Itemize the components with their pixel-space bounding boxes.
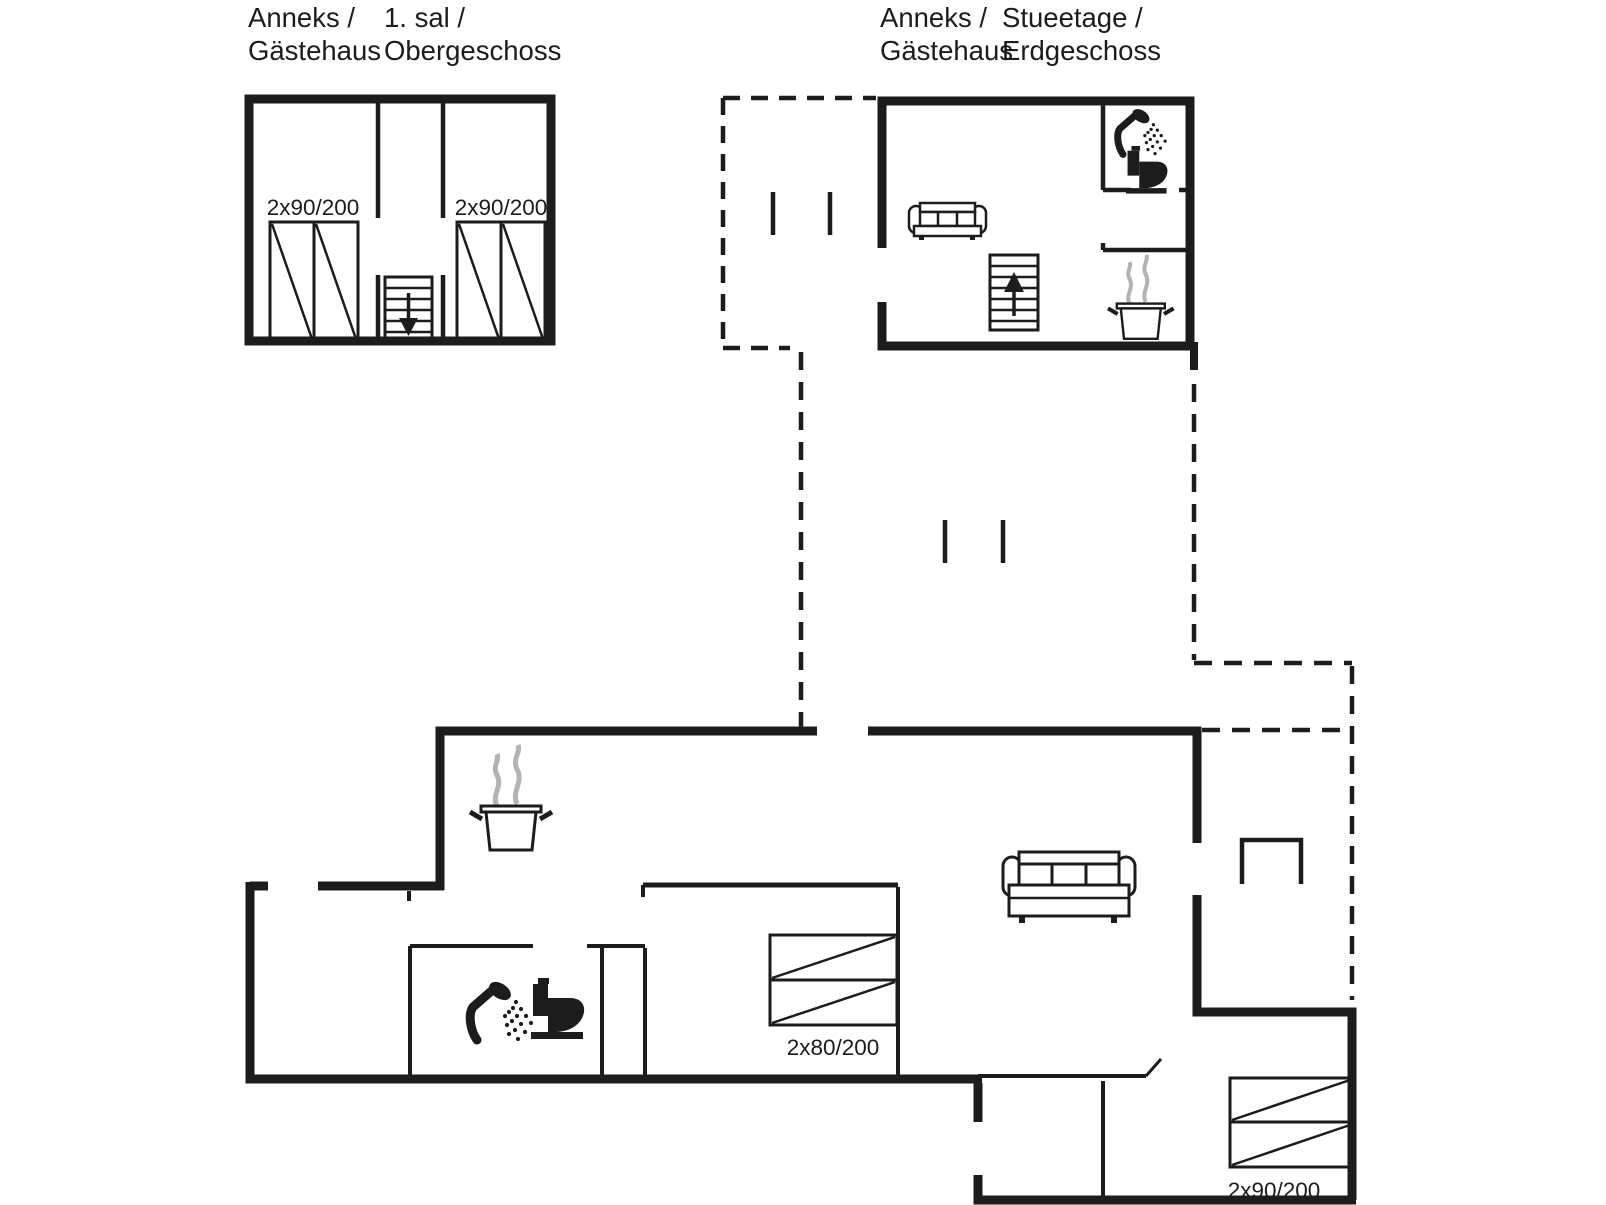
- double-bed-icon: [270, 222, 358, 341]
- toilet-icon: [531, 978, 584, 1039]
- title-text: Erdgeschoss: [1002, 35, 1161, 66]
- bed-size-label: 2x80/200: [787, 1035, 880, 1060]
- window-tick-marks: [945, 520, 1003, 563]
- annex-upper-title: Anneks / Gästehaus 1. sal / Obergeschoss: [248, 2, 561, 66]
- title-text: Stueetage /: [1002, 2, 1143, 33]
- double-bed-icon: [770, 935, 897, 1025]
- cooking-pot-icon: [1108, 255, 1174, 339]
- sofa-icon: [1003, 852, 1135, 923]
- double-bed-icon: [457, 222, 545, 341]
- bathroom-wall: [410, 946, 645, 1077]
- staircase-up-icon: [990, 255, 1038, 330]
- bed-size-label: 2x90/200: [455, 195, 548, 220]
- main-house-floor-plan: 2x80/200 2x90/200: [250, 731, 1356, 1203]
- interior-wall: [409, 885, 1161, 1196]
- cooking-pot-icon: [470, 745, 552, 850]
- floor-plan-page: Anneks / Gästehaus 1. sal / Obergeschoss…: [0, 0, 1606, 1205]
- annex-upper-floor-plan: 2x90/200 2x90/200: [249, 99, 551, 341]
- shower-icon: [470, 978, 533, 1041]
- terrace-furniture-icon: [1242, 840, 1301, 884]
- sofa-icon: [909, 203, 986, 240]
- staircase-down-icon: [385, 277, 432, 341]
- bed-size-label: 2x90/200: [267, 195, 360, 220]
- terrace-dashed-line: [1194, 384, 1352, 1000]
- toilet-icon: [1126, 146, 1167, 194]
- title-text: Gästehaus: [248, 35, 381, 66]
- title-text: 1. sal /: [384, 2, 465, 33]
- annex-ground-floor-plan: [723, 98, 1190, 348]
- shower-icon: [1118, 106, 1167, 155]
- title-text: Anneks /: [880, 2, 987, 33]
- outer-wall: [250, 731, 1356, 1200]
- terrace-dashed-outline: [723, 98, 876, 348]
- window-tick-marks: [773, 192, 830, 235]
- annex-ground-title: Anneks / Gästehaus Stueetage / Erdgescho…: [880, 2, 1161, 66]
- title-text: Anneks /: [248, 2, 355, 33]
- double-bed-icon: [1230, 1078, 1352, 1167]
- floor-plan-svg: Anneks / Gästehaus 1. sal / Obergeschoss…: [0, 0, 1606, 1205]
- title-text: Obergeschoss: [384, 35, 561, 66]
- title-text: Gästehaus: [880, 35, 1013, 66]
- bed-size-label: 2x90/200: [1228, 1178, 1321, 1203]
- outer-wall: [249, 99, 551, 341]
- kitchen-wall: [1103, 243, 1190, 250]
- door-swing-mark: [1146, 1059, 1161, 1076]
